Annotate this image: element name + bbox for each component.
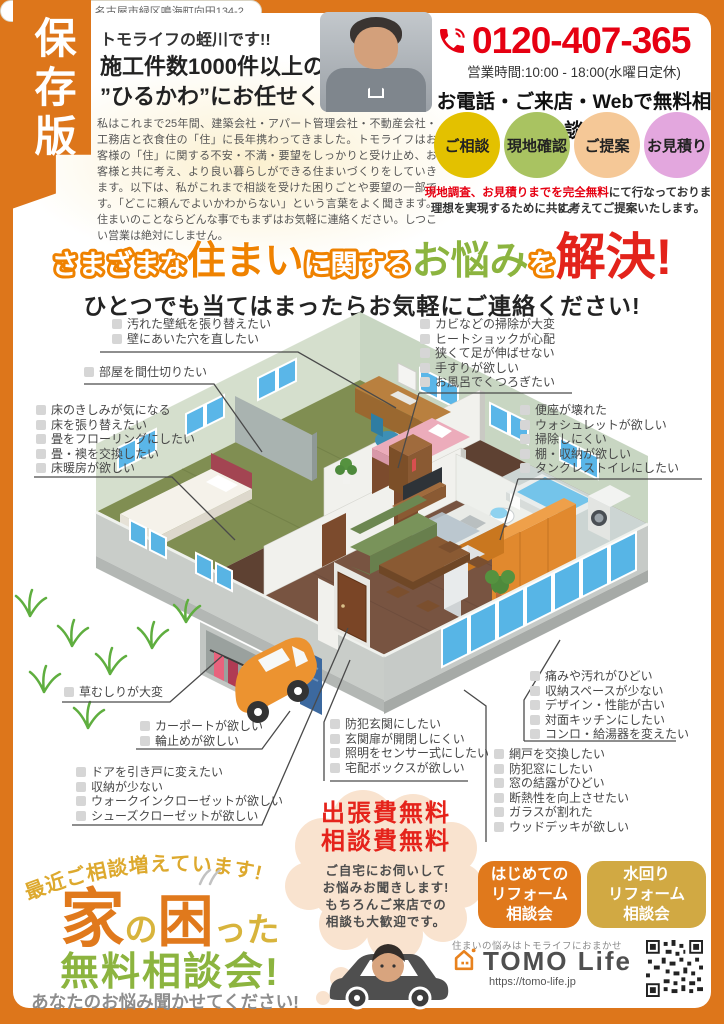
svg-text:さまざまな住まいに関するお悩みを解決!: さまざまな住まいに関するお悩みを解決! bbox=[52, 229, 673, 285]
checklist-label: ウォシュレットが欲しい bbox=[535, 419, 667, 432]
qr-code bbox=[646, 940, 703, 997]
badge-water-reform[interactable]: 水回り リフォーム 相談会 bbox=[587, 861, 706, 928]
phone-icon bbox=[436, 25, 468, 57]
checklist-label: 輪止めが欲しい bbox=[155, 735, 239, 748]
checklist-storage: ドアを引き戸に変えたい収納が少ないウォークインクローゼットが欲しいシューズクロー… bbox=[76, 766, 283, 824]
checkbox-icon[interactable] bbox=[64, 687, 74, 697]
checkbox-icon[interactable] bbox=[76, 811, 86, 821]
checklist-item: 部屋を間仕切りたい bbox=[84, 366, 207, 381]
free-note-red: 現地調査、お見積りまでを完全無料 bbox=[425, 187, 609, 199]
checklist-label: 防犯窓にしたい bbox=[509, 763, 593, 776]
checklist-label: 床暖房が欲しい bbox=[51, 462, 135, 475]
checkbox-icon[interactable] bbox=[420, 377, 430, 387]
checkbox-icon[interactable] bbox=[420, 334, 430, 344]
step-estimate: お見積り bbox=[644, 112, 710, 178]
checklist-partition: 部屋を間仕切りたい bbox=[84, 366, 207, 381]
checkbox-icon[interactable] bbox=[530, 671, 540, 681]
checkbox-icon[interactable] bbox=[520, 449, 530, 459]
checkbox-icon[interactable] bbox=[330, 719, 340, 729]
tomo-life-house-icon bbox=[450, 946, 478, 974]
checklist-item: デザイン・性能が古い bbox=[530, 699, 689, 714]
checkbox-icon[interactable] bbox=[520, 420, 530, 430]
checkbox-icon[interactable] bbox=[494, 764, 504, 774]
checklist-item: ウッドデッキが欲しい bbox=[494, 821, 629, 836]
phone-row: 0120-407-365 bbox=[436, 20, 714, 62]
checklist-kitchen: 痛みや汚れがひどい収納スペースが少ないデザイン・性能が古い対面キッチンにしたいコ… bbox=[530, 670, 689, 743]
phone-number[interactable]: 0120-407-365 bbox=[472, 20, 690, 62]
checklist-item: 草むしりが大変 bbox=[64, 686, 163, 701]
checklist-label: タンクレストイレにしたい bbox=[535, 462, 679, 475]
checklist-item: 床のきしみが気になる bbox=[36, 404, 195, 419]
bubble-body-line: もちろんご来店での bbox=[300, 897, 472, 914]
step-consult-label: ご相談 bbox=[444, 135, 489, 156]
checklist-item: ウォークインクローゼットが欲しい bbox=[76, 795, 283, 810]
checkbox-icon[interactable] bbox=[530, 686, 540, 696]
badge1-line1: はじめての bbox=[491, 865, 569, 885]
checkbox-icon[interactable] bbox=[520, 463, 530, 473]
badge2-line2: リフォーム bbox=[608, 885, 685, 905]
checklist-item: 照明をセンサー式にしたい bbox=[330, 747, 489, 762]
checklist-label: シューズクローゼットが欲しい bbox=[91, 810, 258, 823]
checkbox-icon[interactable] bbox=[520, 434, 530, 444]
checklist-item: 手すりが欲しい bbox=[420, 362, 555, 377]
badge2-line3: 相談会 bbox=[623, 905, 670, 925]
checklist-item: 掃除しにくい bbox=[520, 433, 679, 448]
title-seg1: さまざまな bbox=[52, 249, 187, 280]
checklist-label: デザイン・性能が古い bbox=[545, 699, 665, 712]
checkbox-icon[interactable] bbox=[494, 822, 504, 832]
checkbox-icon[interactable] bbox=[530, 715, 540, 725]
bubble-body-line: お悩みお聞きします! bbox=[300, 880, 472, 897]
checkbox-icon[interactable] bbox=[330, 763, 340, 773]
checklist-carport: カーポートが欲しい輪止めが欲しい bbox=[140, 720, 263, 749]
checklist-label: 照明をセンサー式にしたい bbox=[345, 747, 489, 760]
bubble-body-line: 相談も大歓迎です。 bbox=[300, 914, 472, 931]
checklist-label: 床を張り替えたい bbox=[51, 419, 147, 432]
checklist-item: コンロ・給湯器を変えたい bbox=[530, 728, 689, 743]
checkbox-icon[interactable] bbox=[76, 767, 86, 777]
checkbox-icon[interactable] bbox=[420, 348, 430, 358]
step-estimate-label: お見積り bbox=[647, 135, 707, 156]
step-proposal: ご提案 bbox=[574, 112, 640, 178]
checkbox-icon[interactable] bbox=[330, 734, 340, 744]
checklist-label: 便座が壊れた bbox=[535, 404, 607, 417]
title-seg5: を bbox=[529, 250, 556, 280]
checklist-label: 収納スペースが少ない bbox=[545, 685, 664, 698]
checklist-label: 窓の結露がひどい bbox=[509, 777, 605, 790]
checkbox-icon[interactable] bbox=[112, 319, 122, 329]
checkbox-icon[interactable] bbox=[140, 721, 150, 731]
checklist-label: 畳・襖を交換したい bbox=[51, 448, 159, 461]
checklist-label: 宅配ボックスが欲しい bbox=[345, 762, 465, 775]
checkbox-icon[interactable] bbox=[530, 729, 540, 739]
checklist-item: 輪止めが欲しい bbox=[140, 735, 263, 750]
website-url[interactable]: https://tomo-life.jp bbox=[489, 976, 576, 988]
step-site-check-label: 現地確認 bbox=[507, 135, 567, 156]
owner-photo bbox=[320, 12, 432, 112]
checklist-item: ウォシュレットが欲しい bbox=[520, 419, 679, 434]
consult-steps: ご相談 現地確認 ご提案 お見積り bbox=[434, 112, 710, 178]
checklist-item: 防犯窓にしたい bbox=[494, 763, 629, 778]
checklist-item: タンクレストイレにしたい bbox=[520, 462, 679, 477]
grass-icon bbox=[16, 590, 200, 728]
checklist-item: 玄関扉が開閉しにくい bbox=[330, 733, 489, 748]
bubble-content: 出張費無料 相談費無料 ご自宅にお伺いしてお悩みお聞きします!もちろんご来店での… bbox=[300, 800, 472, 931]
checklist-label: 草むしりが大変 bbox=[79, 686, 163, 699]
checklist-label: 壁にあいた穴を直したい bbox=[127, 333, 259, 346]
checklist-item: ヒートショックが心配 bbox=[420, 333, 555, 348]
checklist-label: 畳をフローリングにしたい bbox=[51, 433, 195, 446]
checklist-item: 畳をフローリングにしたい bbox=[36, 433, 195, 448]
badge2-line1: 水回り bbox=[623, 865, 670, 885]
checklist-label: 断熱性を向上させたい bbox=[509, 792, 629, 805]
title-seg6: 解決! bbox=[556, 229, 673, 285]
logo-text: TOMO Life bbox=[483, 946, 632, 977]
checklist-item: 収納が少ない bbox=[76, 781, 283, 796]
checklist-label: ガラスが割れた bbox=[509, 806, 593, 819]
step-consult: ご相談 bbox=[434, 112, 500, 178]
checklist-label: 掃除しにくい bbox=[535, 433, 607, 446]
checklist-label: 床のきしみが気になる bbox=[51, 404, 171, 417]
checklist-label: 狭くて足が伸ばせない bbox=[435, 347, 555, 360]
checkbox-icon[interactable] bbox=[494, 778, 504, 788]
checkbox-icon[interactable] bbox=[84, 367, 94, 377]
checkbox-icon[interactable] bbox=[76, 796, 86, 806]
checklist-label: 網戸を交換したい bbox=[509, 748, 605, 761]
checkbox-icon[interactable] bbox=[36, 405, 46, 415]
car-driver-icon bbox=[320, 936, 458, 1014]
checklist-label: 手すりが欲しい bbox=[435, 362, 519, 375]
checklist-item: 狭くて足が伸ばせない bbox=[420, 347, 555, 362]
business-hours: 営業時間:10:00 - 18:00(水曜日定休) bbox=[436, 61, 712, 81]
badge1-line3: 相談会 bbox=[506, 905, 553, 925]
checklist-item: カーポートが欲しい bbox=[140, 720, 263, 735]
checklist-item: お風呂でくつろぎたい bbox=[420, 376, 555, 391]
checklist-label: 棚・収納が欲しい bbox=[535, 448, 631, 461]
checkbox-icon[interactable] bbox=[494, 793, 504, 803]
checklist-entrance: 防犯玄関にしたい玄関扉が開閉しにくい照明をセンサー式にしたい宅配ボックスが欲しい bbox=[330, 718, 489, 776]
free-note-line2: 理想を実現するために共に考えてご提案いたします。 bbox=[418, 200, 718, 216]
title-seg4: お悩み bbox=[412, 240, 529, 283]
checklist-garden: 草むしりが大変 bbox=[64, 686, 163, 701]
checklist-item: ドアを引き戸に変えたい bbox=[76, 766, 283, 781]
checklist-toilet: 便座が壊れたウォシュレットが欲しい掃除しにくい棚・収納が欲しいタンクレストイレに… bbox=[520, 404, 679, 477]
checklist-label: 防犯玄関にしたい bbox=[345, 718, 441, 731]
checkbox-icon[interactable] bbox=[330, 748, 340, 758]
checklist-item: 床暖房が欲しい bbox=[36, 462, 195, 477]
checklist-label: コンロ・給湯器を変えたい bbox=[545, 728, 689, 741]
checklist-label: ウッドデッキが欲しい bbox=[509, 821, 629, 834]
checklist-label: 部屋を間仕切りたい bbox=[99, 366, 207, 379]
checklist-label: カビなどの掃除が大変 bbox=[435, 318, 555, 331]
checklist-item: 床を張り替えたい bbox=[36, 419, 195, 434]
checkbox-icon[interactable] bbox=[36, 420, 46, 430]
checkbox-icon[interactable] bbox=[520, 405, 530, 415]
step-proposal-label: ご提案 bbox=[584, 135, 629, 156]
title-seg3: に関する bbox=[304, 250, 412, 280]
listen-note: あなたのお悩み聞かせてください! bbox=[10, 989, 320, 1014]
checklist-item: 棚・収納が欲しい bbox=[520, 448, 679, 463]
checklist-item: 便座が壊れた bbox=[520, 404, 679, 419]
checklist-label: お風呂でくつろぎたい bbox=[435, 376, 555, 389]
save-ribbon-label: 保存版 bbox=[22, 16, 83, 163]
owner-face bbox=[354, 27, 398, 69]
checkbox-icon[interactable] bbox=[36, 463, 46, 473]
bubble-free2: 相談費無料 bbox=[300, 828, 472, 856]
checkbox-icon[interactable] bbox=[140, 736, 150, 746]
checklist-label: ウォークインクローゼットが欲しい bbox=[91, 795, 283, 808]
checklist-item: 壁にあいた穴を直したい bbox=[112, 333, 271, 348]
title-seg2: 住まい bbox=[187, 240, 304, 283]
checklist-label: カーポートが欲しい bbox=[155, 720, 263, 733]
checklist-label: 痛みや汚れがひどい bbox=[545, 670, 653, 683]
checklist-label: 対面キッチンにしたい bbox=[545, 714, 665, 727]
checkbox-icon[interactable] bbox=[420, 363, 430, 373]
greeting-text: トモライフの蛭川です!! bbox=[100, 26, 271, 50]
checklist-label: 玄関扉が開閉しにくい bbox=[345, 733, 465, 746]
checklist-item: カビなどの掃除が大変 bbox=[420, 318, 555, 333]
checklist-item: 防犯玄関にしたい bbox=[330, 718, 489, 733]
checkbox-icon[interactable] bbox=[112, 334, 122, 344]
checklist-window: 網戸を交換したい防犯窓にしたい窓の結露がひどい断熱性を向上させたいガラスが割れた… bbox=[494, 748, 629, 836]
checkbox-icon[interactable] bbox=[36, 449, 46, 459]
main-title: さまざまな住まいに関するお悩みを解決! bbox=[14, 224, 710, 288]
checklist-item: 網戸を交換したい bbox=[494, 748, 629, 763]
checkbox-icon[interactable] bbox=[420, 319, 430, 329]
checklist-item: ガラスが割れた bbox=[494, 806, 629, 821]
checklist-item: 宅配ボックスが欲しい bbox=[330, 762, 489, 777]
checklist-bath: カビなどの掃除が大変ヒートショックが心配狭くて足が伸ばせない手すりが欲しいお風呂… bbox=[420, 318, 555, 391]
badge1-line2: リフォーム bbox=[491, 885, 568, 905]
checklist-label: 汚れた壁紙を張り替えたい bbox=[127, 318, 271, 331]
checkbox-icon[interactable] bbox=[36, 434, 46, 444]
checkbox-icon[interactable] bbox=[530, 700, 540, 710]
bubble-free1: 出張費無料 bbox=[300, 800, 472, 828]
checklist-item: 収納スペースが少ない bbox=[530, 685, 689, 700]
badge-first-reform[interactable]: はじめての リフォーム 相談会 bbox=[478, 861, 581, 928]
checkbox-icon[interactable] bbox=[494, 807, 504, 817]
flyer-page: 保存版 トモライフの蛭川です!! 施工件数1000件以上の ”ひるかわ”にお任せ… bbox=[0, 0, 724, 1024]
checklist-wall: 汚れた壁紙を張り替えたい壁にあいた穴を直したい bbox=[112, 318, 271, 347]
checklist-label: ドアを引き戸に変えたい bbox=[91, 766, 223, 779]
checklist-label: 収納が少ない bbox=[91, 781, 163, 794]
checklist-item: 窓の結露がひどい bbox=[494, 777, 629, 792]
checklist-item: 痛みや汚れがひどい bbox=[530, 670, 689, 685]
checklist-floor: 床のきしみが気になる床を張り替えたい畳をフローリングにしたい畳・襖を交換したい床… bbox=[36, 404, 195, 477]
checkbox-icon[interactable] bbox=[76, 782, 86, 792]
bubble-body-line: ご自宅にお伺いして bbox=[300, 863, 472, 880]
step-site-check: 現地確認 bbox=[504, 112, 570, 178]
checkbox-icon[interactable] bbox=[494, 749, 504, 759]
checklist-label: ヒートショックが心配 bbox=[435, 333, 555, 346]
bubble-body: ご自宅にお伺いしてお悩みお聞きします!もちろんご来店での相談も大歓迎です。 bbox=[300, 863, 472, 931]
checklist-item: 汚れた壁紙を張り替えたい bbox=[112, 318, 271, 333]
checklist-item: シューズクローゼットが欲しい bbox=[76, 810, 283, 825]
